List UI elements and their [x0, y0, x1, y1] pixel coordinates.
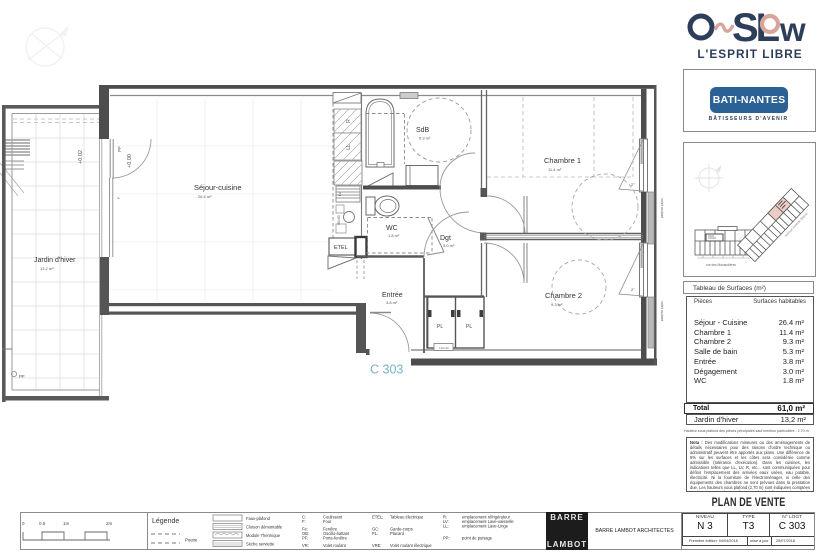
svg-text:PL: PL: [437, 324, 443, 330]
svg-text:Séjour-cuisine: Séjour-cuisine: [194, 183, 242, 192]
svg-text:60x60: 60x60: [337, 215, 341, 225]
svg-text:PF: PF: [117, 146, 122, 152]
svg-text:Chambre 2: Chambre 2: [545, 291, 582, 300]
svg-text:PL:: PL:: [372, 531, 378, 536]
svg-text:3.0 m²: 3.0 m²: [443, 243, 455, 248]
svg-text:Entrée: Entrée: [382, 292, 403, 299]
svg-text:1.8 m²: 1.8 m²: [388, 233, 400, 238]
svg-text:5.3 m²: 5.3 m²: [419, 136, 431, 141]
svg-text:Dgt: Dgt: [440, 235, 451, 242]
svg-text:PP:: PP:: [443, 536, 450, 541]
svg-text:emplacement Lave-Linge: emplacement Lave-Linge: [462, 524, 509, 529]
svg-text:WC: WC: [386, 225, 398, 232]
svg-text:Chambre 1: Chambre 1: [544, 156, 581, 165]
svg-text:C 303: C 303: [370, 363, 403, 377]
svg-text:Porte-fenêtre: Porte-fenêtre: [323, 536, 348, 541]
svg-text:26.4 m²: 26.4 m²: [198, 194, 212, 199]
svg-text:SdB: SdB: [416, 127, 430, 134]
svg-text:rue des Mahaudières: rue des Mahaudières: [706, 263, 736, 267]
svg-text:11.4 m²: 11.4 m²: [548, 167, 562, 172]
svg-text:+0.00: +0.00: [127, 154, 133, 168]
svg-text:2°: 2°: [631, 287, 635, 292]
svg-text:ETEL: ETEL: [334, 245, 348, 251]
svg-text:Jardin d'hiver: Jardin d'hiver: [34, 257, 76, 264]
svg-text:Volet roulant électrique: Volet roulant électrique: [390, 543, 432, 548]
svg-text:Cloison démontable: Cloison démontable: [246, 525, 283, 530]
svg-text:VR:: VR:: [302, 543, 309, 548]
svg-text:PL: PL: [466, 324, 472, 330]
svg-text:point de puisage: point de puisage: [462, 536, 493, 541]
svg-text:Volet roulant: Volet roulant: [323, 543, 347, 548]
svg-text:+0.02: +0.02: [78, 150, 84, 164]
svg-text:Poutre: Poutre: [185, 538, 198, 543]
svg-text:Sèche serviette: Sèche serviette: [246, 542, 275, 547]
svg-text:13.2 m²: 13.2 m²: [40, 266, 54, 271]
svg-text:Placard: Placard: [390, 531, 405, 536]
svg-text:0: 0: [22, 521, 25, 526]
svg-text:Module Thermique: Module Thermique: [246, 533, 281, 538]
svg-text:Tableau électrique: Tableau électrique: [390, 515, 424, 520]
svg-text:2°: 2°: [631, 182, 635, 187]
svg-text:9.3 m²: 9.3 m²: [551, 302, 563, 307]
svg-text:F:: F:: [302, 519, 306, 524]
svg-text:volet roulant: volet roulant: [660, 198, 664, 218]
svg-text:3.8 m²: 3.8 m²: [386, 300, 398, 305]
svg-text:120x40: 120x40: [439, 346, 449, 350]
svg-text:w: w: [779, 11, 806, 48]
svg-text:0.5: 0.5: [39, 521, 46, 526]
svg-text:2m: 2m: [106, 521, 113, 526]
svg-text:R: R: [346, 119, 352, 123]
svg-text:L'ESPRIT LIBRE: L'ESPRIT LIBRE: [697, 47, 802, 61]
svg-text:F: F: [116, 196, 121, 199]
svg-text:volet roulant: volet roulant: [660, 301, 664, 321]
svg-text:PF:: PF:: [302, 536, 308, 541]
svg-text:LV: LV: [337, 191, 342, 196]
svg-text:PF: PF: [19, 374, 25, 379]
svg-text:1m: 1m: [63, 521, 70, 526]
svg-text:LL:: LL:: [443, 524, 449, 529]
svg-text:LL: LL: [346, 144, 352, 150]
svg-text:SL: SL: [732, 6, 780, 50]
svg-text:Faux-plafond: Faux-plafond: [246, 516, 271, 521]
svg-text:VRE:: VRE:: [372, 543, 382, 548]
svg-text:Four: Four: [323, 519, 332, 524]
svg-text:ETEL:: ETEL:: [372, 515, 383, 520]
